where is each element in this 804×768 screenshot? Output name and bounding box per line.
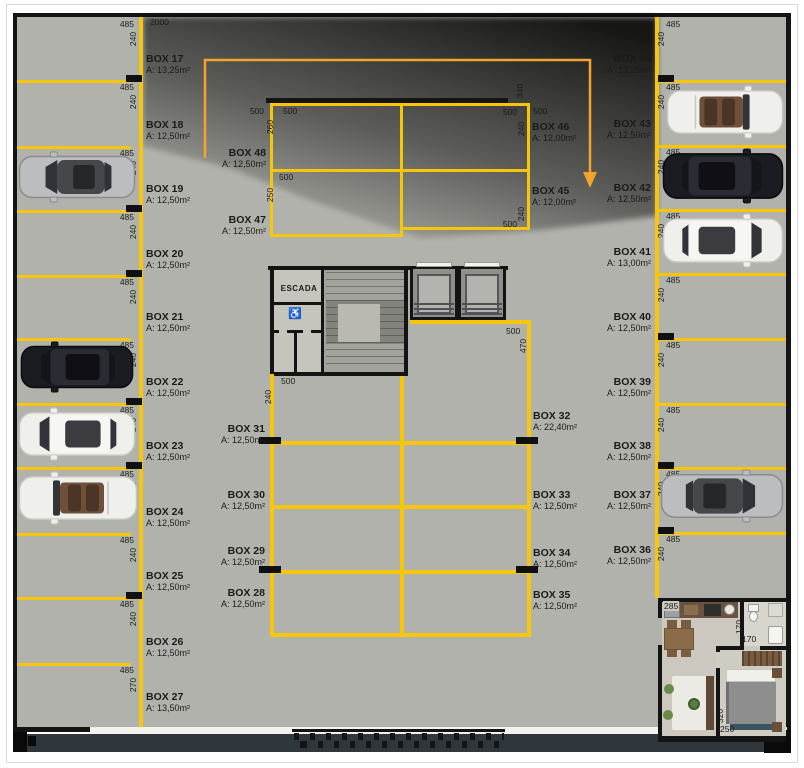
dimension: 500: [234, 106, 264, 116]
elevator-sill: [464, 262, 500, 267]
box-number: BOX 38: [571, 441, 651, 452]
parking-box-label: BOX 35A: 12,50m²: [533, 590, 613, 612]
parking-box-label: BOX 34A: 12,50m²: [533, 548, 613, 570]
box-number: BOX 47: [186, 215, 266, 226]
dimension: 470: [517, 334, 529, 358]
potted-plant: [688, 698, 700, 710]
stall-line: [270, 169, 530, 172]
box-area: A: 12,50m²: [146, 648, 226, 659]
stall-line: [270, 234, 403, 237]
box-number: BOX 18: [146, 120, 226, 131]
elevator-sill: [416, 262, 452, 267]
parking-box-label: BOX 31A: 12,50m²: [185, 424, 265, 446]
floor-plan: 2000 500 260 500 500 240 500 340 500 250…: [0, 0, 804, 768]
box-area: A: 12,50m²: [185, 501, 265, 512]
bed-duvet: [726, 682, 776, 724]
dimension: 240: [655, 412, 667, 438]
wheel-stop: [126, 592, 142, 599]
box-number: BOX 45: [532, 186, 612, 197]
box-number: BOX 39: [571, 377, 651, 388]
parking-box-label: BOX 33A: 12,50m²: [533, 490, 613, 512]
wheel-stop: [126, 398, 142, 405]
stair-wall-left: [270, 266, 274, 376]
bedroom-wall: [716, 646, 720, 652]
dimension: 485: [666, 275, 680, 285]
box-number: BOX 32: [533, 411, 613, 422]
parking-box-label: BOX 21A: 12,50m²: [146, 312, 226, 334]
dimension-text: 240: [128, 290, 138, 304]
dimension: 500: [487, 219, 517, 229]
dimension-text: 240: [128, 95, 138, 109]
box-area: A: 12,50m²: [533, 601, 613, 612]
box-area: A: 12,50m²: [146, 131, 226, 142]
dimension: 285: [663, 601, 679, 611]
wheel-stop: [516, 437, 538, 444]
box-number: BOX 40: [571, 312, 651, 323]
box-area: A: 12,50m²: [571, 323, 651, 334]
dimension: 485: [666, 534, 680, 544]
ramp-grate: [294, 741, 504, 748]
wheel-stop: [658, 75, 674, 82]
dimension: 500: [279, 172, 293, 182]
box-number: BOX 27: [146, 692, 226, 703]
dimension-text: 240: [656, 418, 666, 432]
dimension: 250: [720, 724, 734, 734]
dimension: 500: [533, 106, 547, 116]
ramp-edge-line: [292, 729, 505, 732]
dimension-text: 240: [656, 95, 666, 109]
dimension: 240: [515, 202, 527, 226]
dimension-text: 270: [128, 678, 138, 692]
dimension: 240: [515, 117, 527, 141]
dining-chair: [667, 620, 677, 628]
box-number: BOX 31: [185, 424, 265, 435]
cutting-board: [684, 605, 698, 615]
box-number: BOX 41: [571, 247, 651, 258]
car-suv-white: [18, 406, 136, 462]
box-area: A: 12,50m²: [146, 260, 226, 271]
elevator-door-tracks: [462, 303, 502, 315]
wheel-stop: [126, 75, 142, 82]
parking-box-label: BOX 39A: 12,50m²: [571, 377, 651, 399]
car-convertible-white: [18, 470, 138, 526]
stair-landing: [338, 304, 380, 342]
box-number: BOX 25: [146, 571, 226, 582]
box-number: BOX 20: [146, 249, 226, 260]
dimension: 240: [127, 219, 139, 245]
car-sedan-silver: [660, 468, 784, 524]
box-area: A: 12,00m²: [532, 133, 612, 144]
car-sedan-silver: [18, 150, 136, 204]
car-suv-white: [662, 212, 784, 269]
box-area: A: 12,50m²: [185, 435, 265, 446]
box-number: BOX 35: [533, 590, 613, 601]
box-number: BOX 26: [146, 637, 226, 648]
stall-line: [527, 322, 531, 636]
dimension: 500: [281, 376, 295, 386]
shower: [768, 603, 783, 617]
parking-box-label: BOX 38A: 12,50m²: [571, 441, 651, 463]
dimension: 240: [262, 385, 274, 409]
apartment-wall-left: [658, 602, 662, 618]
bed-pillows: [726, 669, 776, 682]
box-number: BOX 19: [146, 184, 226, 195]
box-area: A: 12,50m²: [146, 518, 226, 529]
dimension-text: 240: [656, 547, 666, 561]
parking-box-label: BOX 41A: 13,00m²: [571, 247, 651, 269]
wardrobe: [742, 651, 782, 666]
round-sink: [724, 604, 735, 615]
box-number: BOX 34: [533, 548, 613, 559]
dimension: 170: [742, 634, 756, 644]
plant: [664, 684, 674, 694]
box-area: A: 12,50m²: [185, 599, 265, 610]
dimension: 270: [127, 672, 139, 698]
dimension: 260: [264, 114, 276, 140]
wheel-stop: [658, 527, 674, 534]
wheel-stop: [126, 270, 142, 277]
dimension: 485: [666, 405, 680, 415]
dimension-text: 240: [128, 612, 138, 626]
box-area: A: 12,50m²: [146, 195, 226, 206]
parking-box-label: BOX 40A: 12,50m²: [571, 312, 651, 334]
ramp-grate: [294, 733, 504, 740]
dining-chair: [667, 650, 677, 657]
car-suv-black: [662, 147, 784, 205]
box-number: BOX 21: [146, 312, 226, 323]
left-stall-line-vertical: [139, 17, 143, 728]
wheel-stop: [658, 333, 674, 340]
stair-wall-sub3: [294, 333, 297, 372]
wheel-stop: [126, 462, 142, 469]
box-area: A: 12,50m²: [571, 452, 651, 463]
parking-box-label: BOX 28A: 12,50m²: [185, 588, 265, 610]
dimension-text: 240: [128, 225, 138, 239]
parking-box-label: BOX 48A: 12,50m²: [186, 148, 266, 170]
apartment-wall-bottom: [658, 736, 786, 742]
box-number: BOX 48: [186, 148, 266, 159]
box-area: A: 13,00m²: [571, 258, 651, 269]
dimension: 485: [666, 340, 680, 350]
dimension-text: 240: [128, 32, 138, 46]
car-convertible-white: [666, 84, 784, 140]
pillar: [28, 736, 36, 746]
dimension: 240: [655, 26, 667, 52]
dimension-text: 240: [656, 288, 666, 302]
box-number: BOX 22: [146, 377, 226, 388]
parking-box-label: BOX 45A: 12,00m²: [532, 186, 612, 208]
box-number: BOX 29: [185, 546, 265, 557]
dimension: 500: [283, 106, 297, 116]
nightstand: [772, 722, 782, 732]
stall-line: [270, 441, 531, 445]
box-area: A: 12,50m²: [186, 226, 266, 237]
parking-box-label: BOX 44A: 13,25m²: [571, 54, 651, 76]
box-area: A: 12,50m²: [533, 501, 613, 512]
parking-box-label: BOX 30A: 12,50m²: [185, 490, 265, 512]
stair-wall-sub1: [274, 302, 321, 305]
box-area: A: 13,25m²: [146, 65, 226, 76]
parking-box-label: BOX 27A: 13,50m²: [146, 692, 226, 714]
box-area: A: 12,50m²: [146, 452, 226, 463]
car-suv-black: [20, 340, 134, 394]
wheelchair-icon: ♿: [288, 307, 302, 320]
box-area: A: 12,50m²: [185, 557, 265, 568]
toilet-bowl: [749, 611, 758, 622]
dimension: 340: [514, 80, 526, 102]
stall-line: [527, 103, 530, 230]
bed-bench: [730, 724, 772, 730]
dimension: 240: [127, 542, 139, 568]
stairs-label: ESCADA: [276, 284, 322, 293]
dimension: 240: [127, 606, 139, 632]
dimension: 240: [655, 541, 667, 567]
stair-wall-right: [404, 266, 408, 376]
console-bench: [706, 676, 714, 730]
plant: [663, 710, 673, 720]
dimension: 240: [655, 282, 667, 308]
wheel-stop: [126, 205, 142, 212]
box-area: A: 12,50m²: [571, 388, 651, 399]
dimension: 240: [127, 26, 139, 52]
dining-chair: [681, 650, 691, 657]
box-area: A: 13,50m²: [146, 703, 226, 714]
dimension-text: 240: [128, 548, 138, 562]
stall-line: [270, 570, 531, 574]
dimension: 250: [264, 182, 276, 208]
box-number: BOX 17: [146, 54, 226, 65]
box-area: A: 22,40m²: [533, 422, 613, 433]
dimension: 240: [127, 89, 139, 115]
box-number: BOX 44: [571, 54, 651, 65]
parking-box-label: BOX 47A: 12,50m²: [186, 215, 266, 237]
box-area: A: 12,50m²: [186, 159, 266, 170]
elevator-door-tracks: [414, 303, 454, 315]
overall-dimension: 2000: [150, 17, 169, 27]
dimension: 500: [487, 107, 517, 117]
washbasin: [768, 626, 783, 644]
box-number: BOX 33: [533, 490, 613, 501]
parking-box-label: BOX 22A: 12,50m²: [146, 377, 226, 399]
stall-line: [270, 505, 531, 509]
dimension: 485: [666, 19, 680, 29]
box-area: A: 12,00m²: [532, 197, 612, 208]
parking-box-label: BOX 19A: 12,50m²: [146, 184, 226, 206]
dining-chair: [681, 620, 691, 628]
nightstand: [772, 668, 782, 678]
dimension: 240: [127, 284, 139, 310]
parking-box-label: BOX 18A: 12,50m²: [146, 120, 226, 142]
parking-box-label: BOX 46A: 12,00m²: [532, 122, 612, 144]
pillar: [13, 732, 27, 752]
box-number: BOX 30: [185, 490, 265, 501]
parking-box-label: BOX 29A: 12,50m²: [185, 546, 265, 568]
box-number: BOX 28: [185, 588, 265, 599]
stall-line: [410, 320, 531, 324]
parking-box-label: BOX 20A: 12,50m²: [146, 249, 226, 271]
box-area: A: 12,50m²: [146, 323, 226, 334]
dimension-text: 240: [656, 32, 666, 46]
parking-box-label: BOX 17A: 13,25m²: [146, 54, 226, 76]
parking-box-label: BOX 32A: 22,40m²: [533, 411, 613, 433]
box-area: A: 12,50m²: [146, 388, 226, 399]
door-gap: [303, 330, 311, 333]
dining-table: [664, 628, 694, 650]
box-area: A: 12,50m²: [533, 559, 613, 570]
box-number: BOX 46: [532, 122, 612, 133]
stall-line: [270, 633, 531, 637]
door-gap: [279, 330, 287, 333]
bath-bottom-wall: [760, 646, 786, 650]
parking-box-label: BOX 26A: 12,50m²: [146, 637, 226, 659]
apartment-wall-left: [658, 645, 662, 740]
box-area: A: 13,25m²: [571, 65, 651, 76]
dimension-text: 240: [656, 353, 666, 367]
stove: [704, 604, 721, 616]
dimension: 240: [655, 347, 667, 373]
bath-bottom-wall: [716, 646, 744, 650]
